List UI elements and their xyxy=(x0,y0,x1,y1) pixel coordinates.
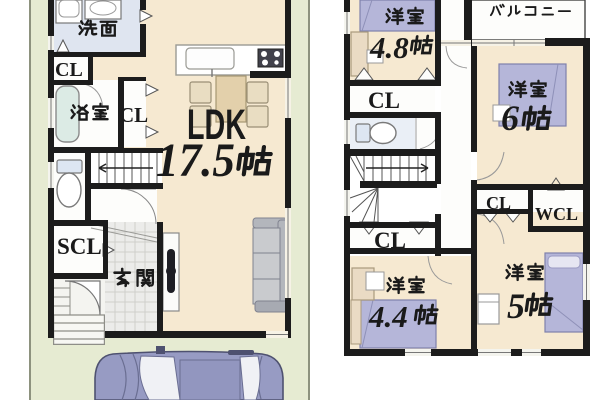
svg-text:SCL: SCL xyxy=(57,234,102,259)
svg-text:17.5: 17.5 xyxy=(156,134,235,187)
svg-text:5: 5 xyxy=(507,286,525,326)
svg-text:CL: CL xyxy=(368,88,400,113)
svg-text:CL: CL xyxy=(486,193,511,213)
svg-text:6: 6 xyxy=(501,98,519,138)
svg-text:CL: CL xyxy=(374,228,406,253)
svg-text:4.8: 4.8 xyxy=(369,30,409,65)
svg-text:CL: CL xyxy=(55,59,83,81)
svg-text:CL: CL xyxy=(119,103,148,127)
svg-text:4.4: 4.4 xyxy=(368,299,408,334)
svg-text:WCL: WCL xyxy=(535,204,578,224)
